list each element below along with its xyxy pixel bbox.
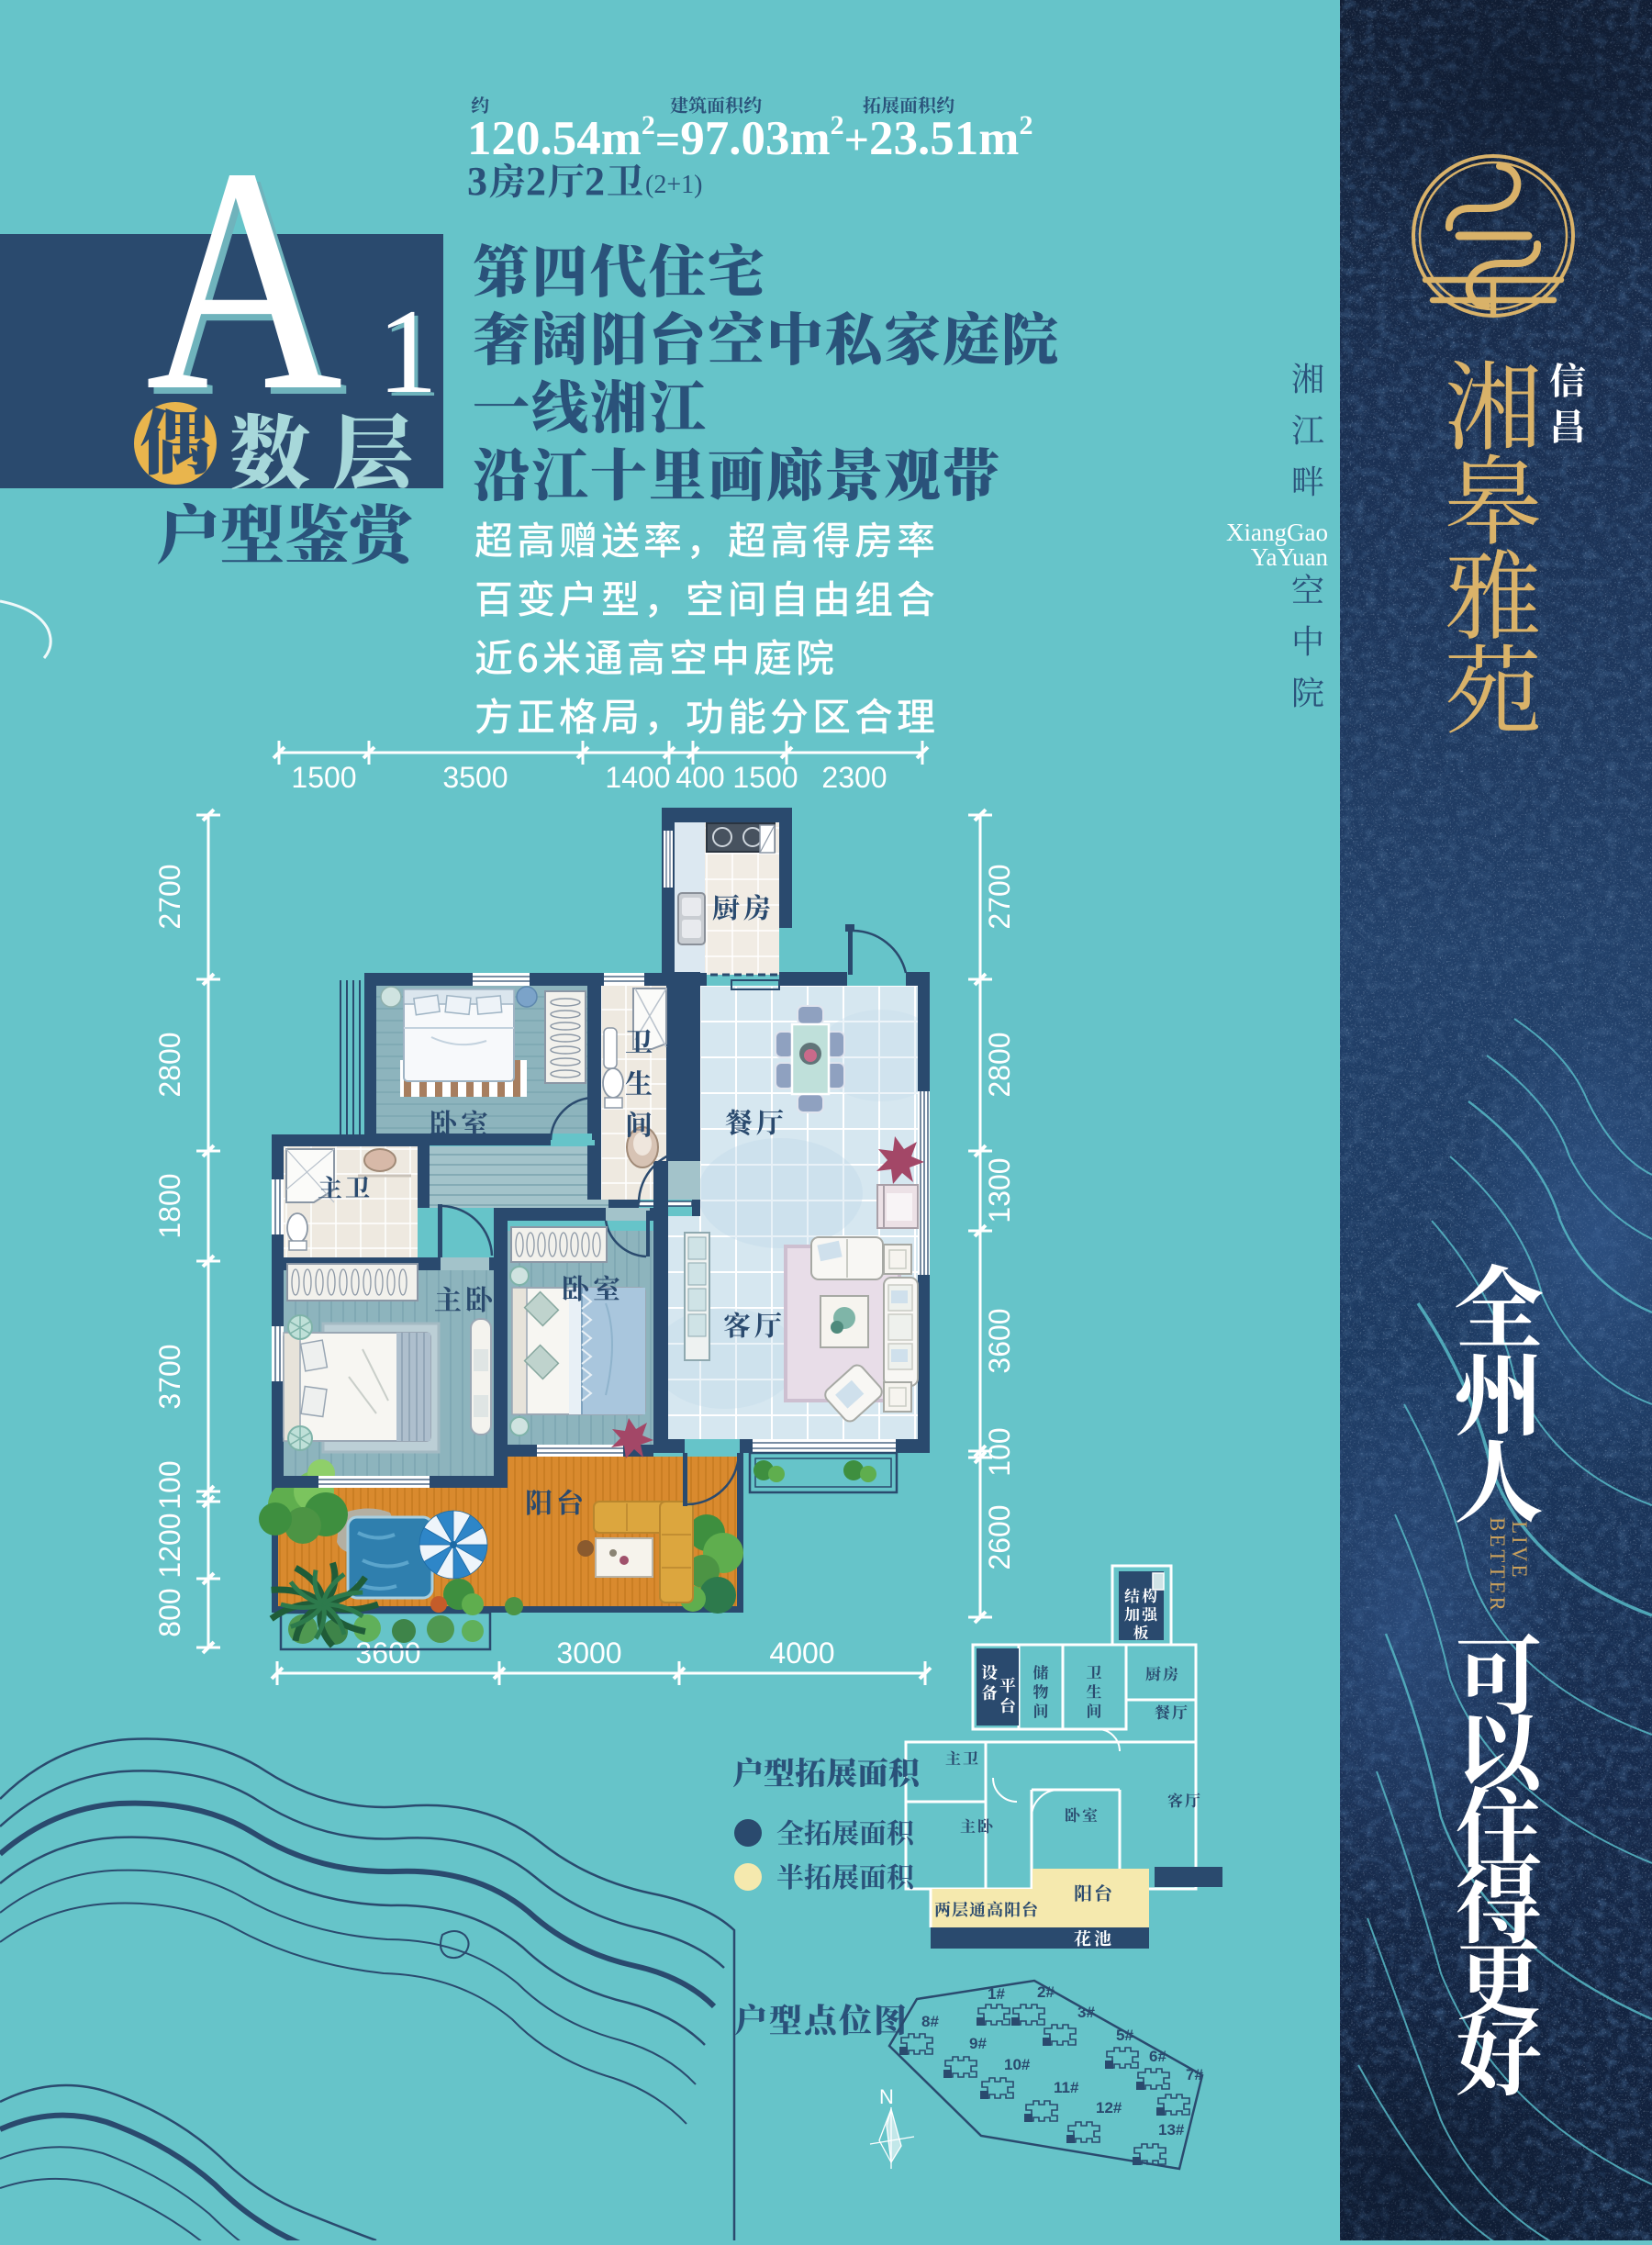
svg-text:3000: 3000 [556, 1636, 621, 1670]
svg-text:2#: 2# [1037, 1983, 1055, 2001]
svg-text:2800: 2800 [983, 1032, 1016, 1097]
svg-text:5#: 5# [1116, 2027, 1133, 2044]
svg-text:8#: 8# [921, 2013, 939, 2030]
svg-text:3700: 3700 [153, 1344, 186, 1409]
svg-text:BETTER: BETTER [1486, 1517, 1509, 1614]
svg-text:3#: 3# [1077, 2004, 1095, 2021]
svg-text:100: 100 [983, 1427, 1016, 1476]
svg-text:XiangGao: XiangGao [1226, 519, 1328, 546]
svg-text:2600: 2600 [983, 1504, 1016, 1569]
svg-text:13#: 13# [1158, 2121, 1185, 2139]
svg-text:9#: 9# [969, 2035, 987, 2052]
svg-text:120.54m2=97.03m2+23.51m2: 120.54m2=97.03m2+23.51m2 [467, 110, 1032, 165]
svg-text:LIVE: LIVE [1508, 1521, 1531, 1580]
svg-text:400: 400 [675, 761, 724, 794]
svg-text:10#: 10# [1004, 2056, 1031, 2073]
svg-text:6#: 6# [1149, 2048, 1166, 2065]
svg-text:1500: 1500 [291, 761, 356, 794]
svg-text:3600: 3600 [983, 1308, 1016, 1373]
svg-text:(2+1): (2+1) [645, 171, 702, 199]
svg-text:3500: 3500 [442, 761, 508, 794]
svg-text:YaYuan: YaYuan [1251, 543, 1329, 571]
svg-text:N: N [879, 2085, 894, 2108]
svg-text:1300: 1300 [983, 1157, 1016, 1223]
svg-text:1400: 1400 [605, 761, 670, 794]
svg-text:1#: 1# [988, 1985, 1005, 2003]
svg-text:2: 2 [585, 159, 605, 204]
svg-text:12#: 12# [1096, 2099, 1122, 2117]
svg-text:100: 100 [153, 1460, 186, 1509]
svg-text:2700: 2700 [983, 864, 1016, 929]
svg-text:1: 1 [377, 284, 438, 419]
svg-text:2300: 2300 [821, 761, 887, 794]
svg-text:1500: 1500 [732, 761, 798, 794]
svg-text:1800: 1800 [153, 1173, 186, 1238]
svg-text:3: 3 [467, 159, 487, 204]
svg-text:11#: 11# [1054, 2079, 1079, 2096]
svg-text:2700: 2700 [153, 864, 186, 929]
svg-text:1200: 1200 [153, 1513, 186, 1578]
svg-text:2: 2 [526, 159, 546, 204]
svg-text:4000: 4000 [769, 1636, 834, 1670]
svg-text:7#: 7# [1186, 2066, 1203, 2083]
svg-text:800: 800 [153, 1588, 186, 1636]
svg-text:2800: 2800 [153, 1032, 186, 1097]
